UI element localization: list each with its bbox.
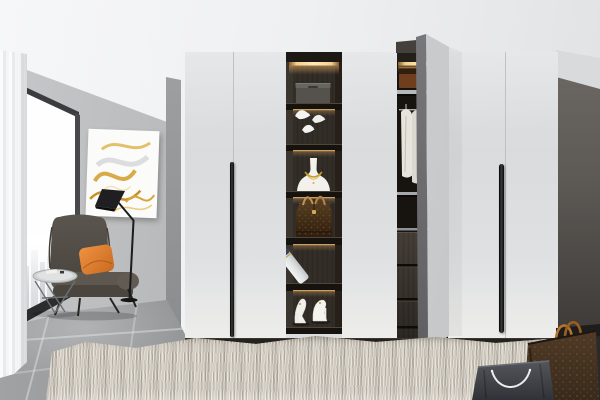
dressing-room-photo [0, 0, 600, 400]
wardrobe-door-1 [185, 52, 233, 338]
wardrobe-door-5 [505, 52, 558, 338]
led-strip [289, 62, 339, 66]
lounge-corner [22, 186, 152, 322]
sheer-curtain [0, 48, 28, 380]
wardrobe [185, 52, 558, 352]
gray-rope-bag [472, 361, 554, 400]
tile-joint [0, 327, 192, 342]
orange-cushion [78, 244, 115, 276]
monogram-handbag [296, 197, 332, 237]
shopping-bags [470, 310, 600, 400]
door-handle-right [499, 164, 504, 333]
display-column [286, 52, 342, 338]
storage-box [296, 83, 331, 103]
door-seam [505, 52, 506, 338]
wardrobe-door-3 [342, 52, 397, 338]
door-handle-left [230, 162, 235, 337]
wardrobe-door-2 [233, 52, 286, 338]
